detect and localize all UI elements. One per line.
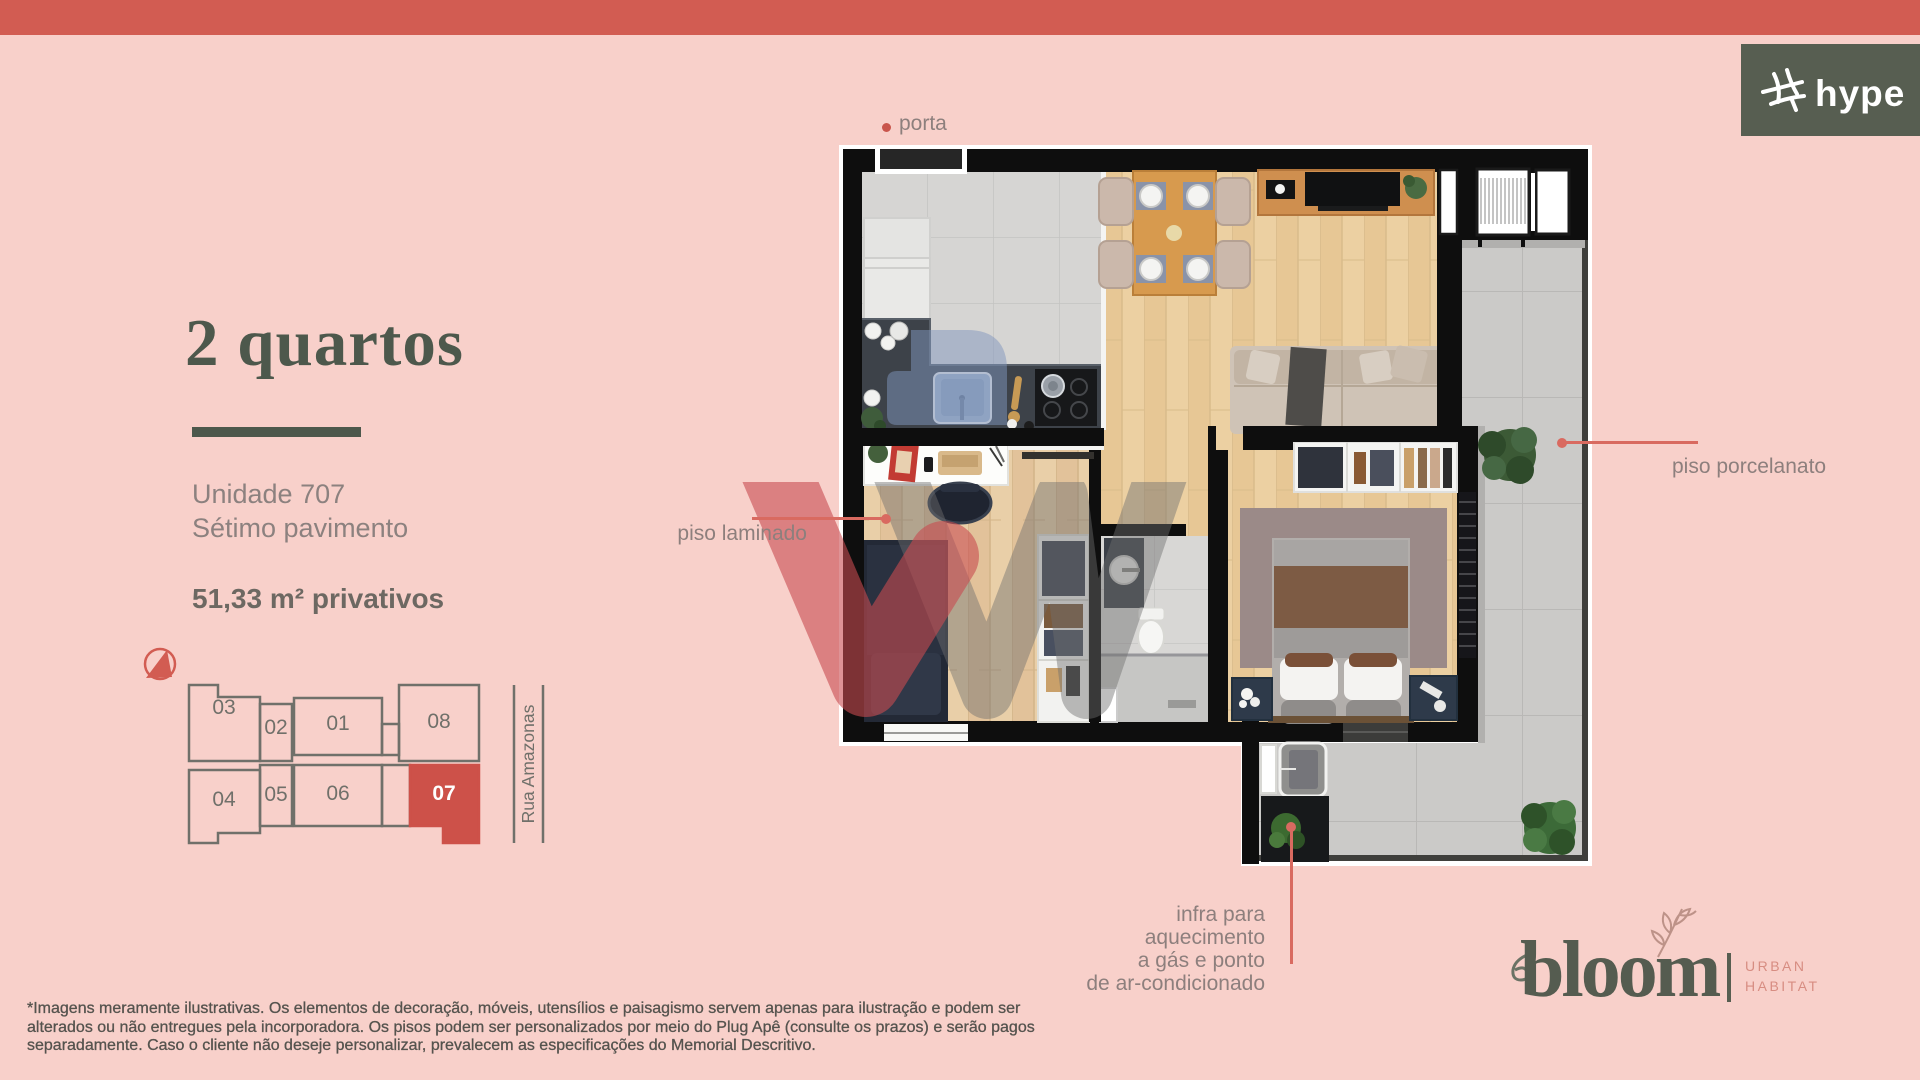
svg-text:03: 03	[212, 696, 235, 719]
svg-text:05: 05	[264, 783, 287, 806]
svg-text:07: 07	[432, 782, 455, 805]
svg-text:06: 06	[326, 782, 349, 805]
svg-text:04: 04	[212, 788, 236, 811]
svg-text:02: 02	[264, 716, 287, 739]
svg-text:01: 01	[326, 712, 349, 735]
svg-text:hype: hype	[1815, 73, 1905, 114]
svg-text:08: 08	[427, 710, 450, 733]
svg-text:Rua Amazonas: Rua Amazonas	[518, 704, 538, 823]
